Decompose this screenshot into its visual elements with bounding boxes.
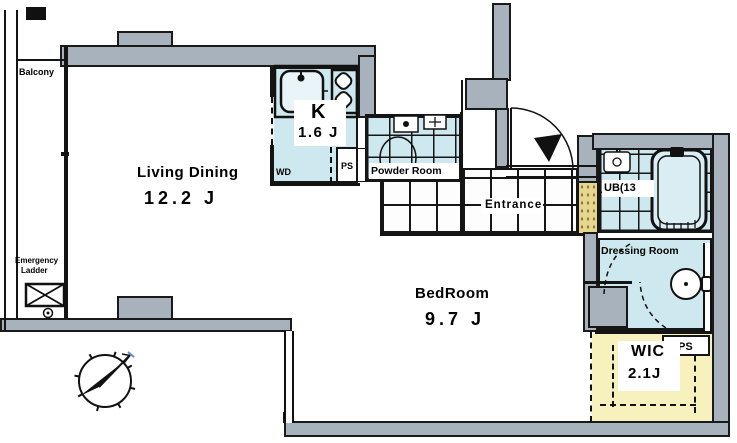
ps-label: PS xyxy=(678,342,693,353)
bath-sink-icon xyxy=(604,152,630,172)
pipe-space-kitchen: PS xyxy=(336,147,358,183)
wall-segment xyxy=(0,318,292,332)
bedroom-window xyxy=(284,331,294,423)
wall-segment xyxy=(712,133,730,437)
balcony-rail-line xyxy=(16,10,18,318)
kitchen-label: K xyxy=(311,102,325,122)
kitchen-door-dash xyxy=(271,97,273,145)
entrance-label: Entrance xyxy=(485,200,542,212)
balcony-divider-line xyxy=(16,59,66,61)
bedroom-size: 9.7 J xyxy=(425,310,485,328)
kitchen-size: 1.6 J xyxy=(298,125,339,140)
emergency-ladder-label-1: Emergency xyxy=(15,257,58,265)
wic-inner-dash xyxy=(612,345,614,407)
compass-icon xyxy=(70,346,140,416)
unit-bath-label: UB(13 xyxy=(604,183,636,194)
wall-segment xyxy=(492,3,511,81)
wall-segment xyxy=(358,55,376,118)
wic-label: WIC xyxy=(631,344,665,360)
balcony-partition xyxy=(26,7,46,20)
bathtub-icon xyxy=(652,150,706,230)
nook-line xyxy=(461,80,463,114)
entrance-door-icon xyxy=(502,102,582,182)
washer-dryer-label: WD xyxy=(276,168,291,177)
wic-left-dash xyxy=(590,332,592,422)
wall-segment xyxy=(117,296,173,320)
balcony-label: Balcony xyxy=(19,68,54,77)
powder-door-leaf xyxy=(357,148,366,182)
balcony-rail-line xyxy=(4,10,6,330)
living-window-wall xyxy=(64,47,68,318)
washer-space-dash xyxy=(330,147,332,183)
kitchen-bottom-line xyxy=(270,183,360,186)
living-dining-size: 12.2 J xyxy=(144,189,218,207)
emergency-ladder-icon xyxy=(20,280,70,320)
powder-room-label: Powder Room xyxy=(371,166,442,177)
floor-plan: PS PS xyxy=(0,0,737,443)
wic-size: 2.1J xyxy=(628,366,661,381)
ps-label: PS xyxy=(341,162,353,171)
wall-segment xyxy=(60,45,376,67)
entry-step-mat xyxy=(578,182,598,235)
wic-inner-dash xyxy=(600,404,696,406)
living-dining-label: Living Dining xyxy=(137,165,239,180)
dressing-room-label: Dressing Room xyxy=(601,246,679,257)
bedroom-label: BedRoom xyxy=(415,286,489,301)
emergency-ladder-label-2: Ladder xyxy=(21,267,48,275)
window-tick xyxy=(61,152,69,156)
wall-segment xyxy=(284,421,730,437)
hall-bottom-line xyxy=(380,233,585,236)
